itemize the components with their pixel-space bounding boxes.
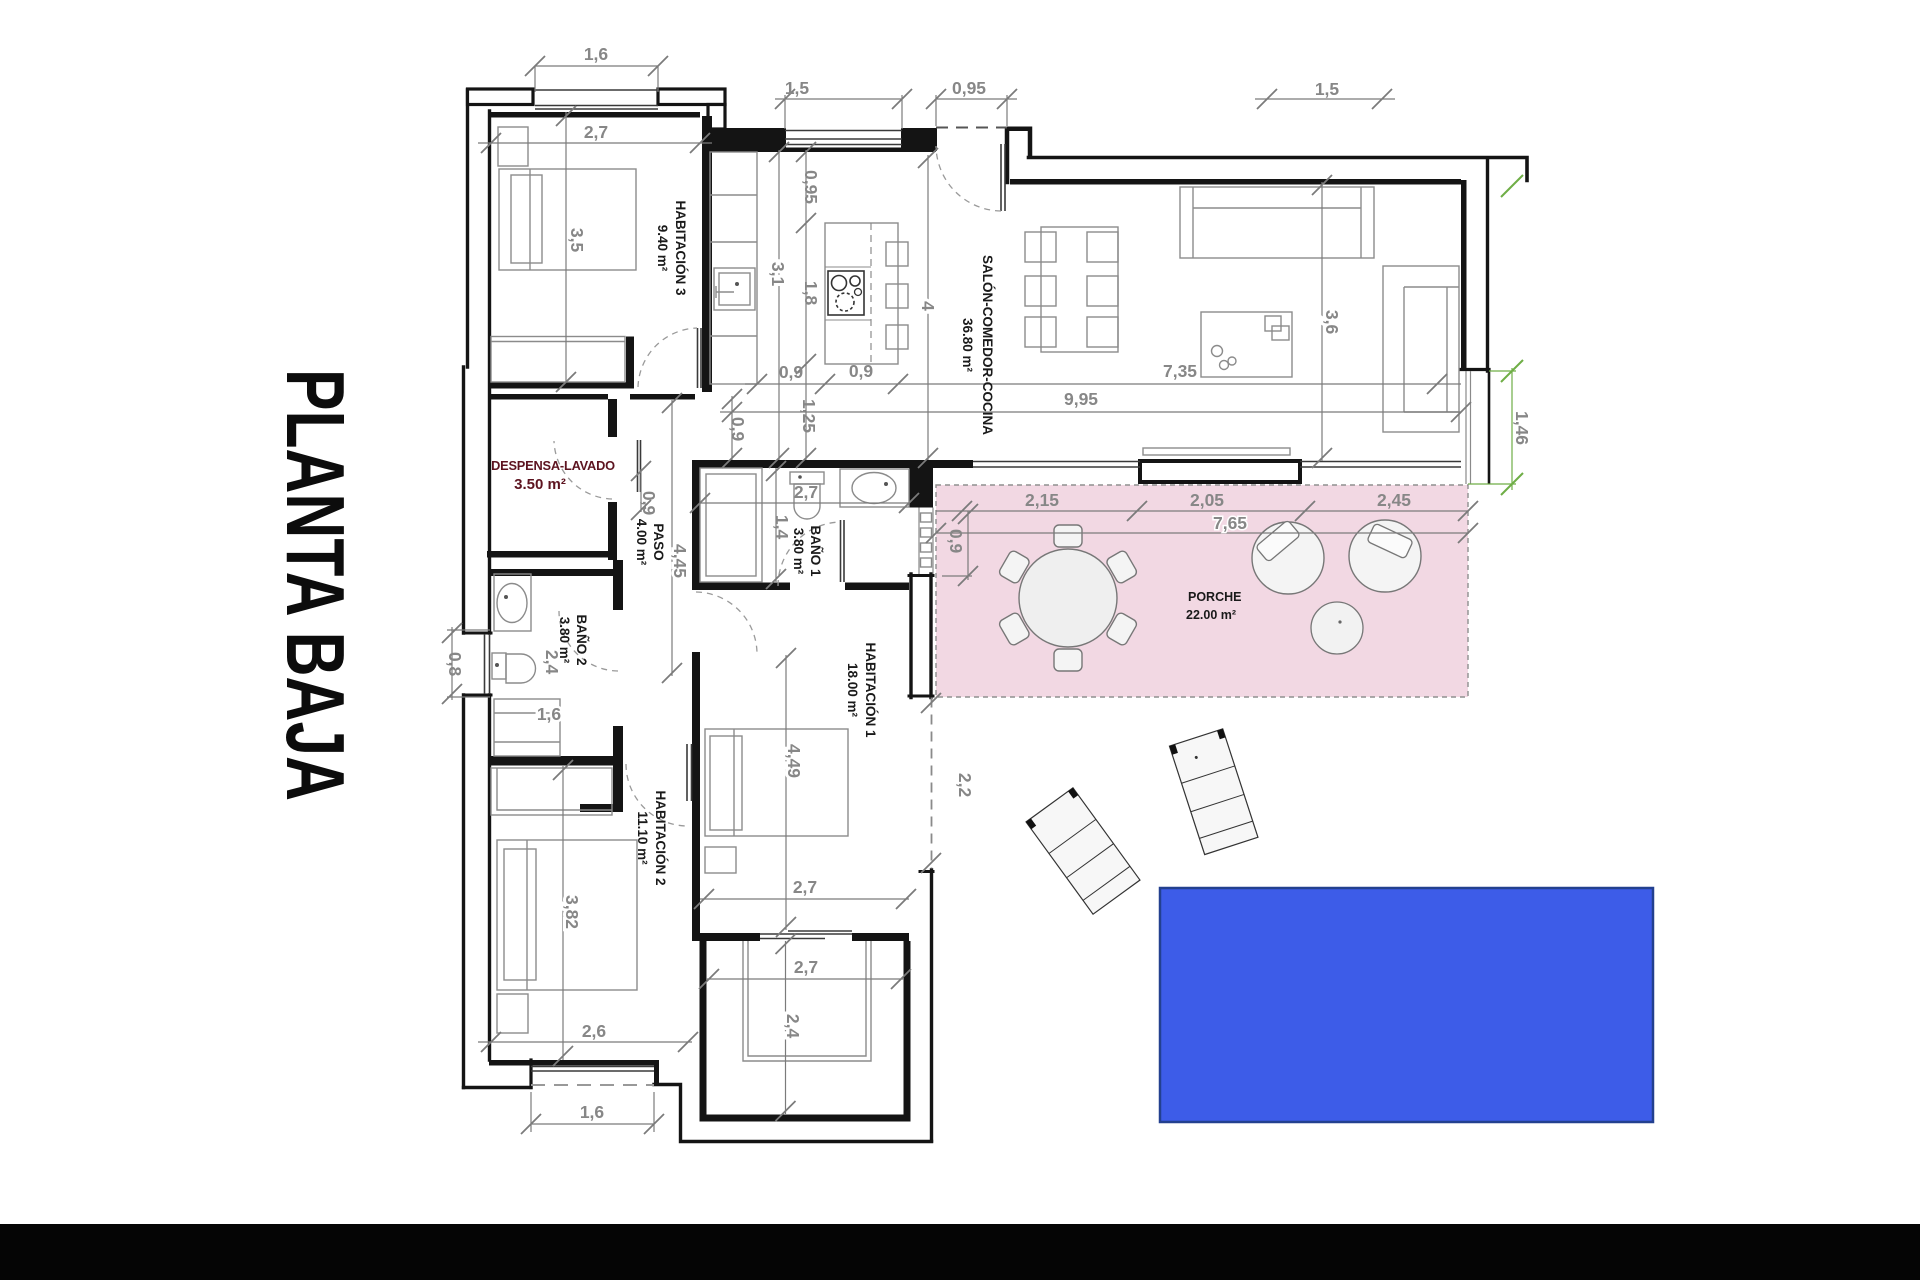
- svg-text:18.00 m²: 18.00 m²: [845, 663, 860, 718]
- svg-text:DESPENSA-LAVADO: DESPENSA-LAVADO: [491, 458, 615, 473]
- svg-text:3,6: 3,6: [1322, 310, 1342, 335]
- svg-text:4: 4: [918, 301, 938, 311]
- svg-text:0,9: 0,9: [728, 417, 748, 442]
- svg-text:3,82: 3,82: [562, 895, 582, 929]
- svg-text:2,15: 2,15: [1025, 490, 1059, 510]
- svg-text:4.00 m²: 4.00 m²: [634, 519, 649, 566]
- svg-text:1,46: 1,46: [1512, 411, 1532, 445]
- svg-text:2,05: 2,05: [1190, 490, 1224, 510]
- svg-text:4,49: 4,49: [784, 744, 804, 778]
- svg-text:HABITACIÓN 1: HABITACIÓN 1: [863, 642, 878, 737]
- svg-text:2,45: 2,45: [1377, 490, 1411, 510]
- svg-text:1,5: 1,5: [1315, 79, 1340, 99]
- svg-text:2,7: 2,7: [794, 957, 818, 977]
- svg-text:1,5: 1,5: [785, 78, 810, 98]
- svg-text:3.50 m²: 3.50 m²: [514, 476, 566, 493]
- svg-text:HABITACIÓN 2: HABITACIÓN 2: [653, 790, 668, 885]
- svg-text:1,25: 1,25: [799, 399, 819, 433]
- svg-text:PLANTA BAJA: PLANTA BAJA: [269, 369, 362, 801]
- svg-text:0,9: 0,9: [639, 491, 659, 516]
- svg-text:1,6: 1,6: [537, 704, 562, 724]
- svg-text:11.10 m²: 11.10 m²: [635, 811, 650, 865]
- svg-text:0,9: 0,9: [849, 361, 874, 381]
- svg-text:0,9: 0,9: [779, 362, 804, 382]
- svg-text:2,2: 2,2: [955, 773, 975, 798]
- svg-text:1,6: 1,6: [580, 1102, 605, 1122]
- svg-text:PORCHE: PORCHE: [1188, 590, 1241, 604]
- svg-text:2,4: 2,4: [542, 650, 562, 675]
- svg-text:9.40 m²: 9.40 m²: [655, 225, 670, 272]
- svg-text:22.00 m²: 22.00 m²: [1186, 608, 1236, 622]
- svg-text:0,9: 0,9: [946, 529, 966, 554]
- svg-text:7,65: 7,65: [1213, 513, 1247, 533]
- svg-text:PASO: PASO: [651, 523, 666, 560]
- svg-text:7,35: 7,35: [1163, 361, 1197, 381]
- svg-text:3.80 m²: 3.80 m²: [791, 528, 806, 575]
- svg-text:2,7: 2,7: [584, 122, 608, 142]
- svg-text:4,45: 4,45: [670, 544, 690, 578]
- svg-text:0,8: 0,8: [445, 652, 465, 677]
- svg-text:1,4: 1,4: [772, 515, 792, 540]
- svg-text:2,4: 2,4: [783, 1014, 803, 1039]
- svg-text:2,7: 2,7: [793, 877, 817, 897]
- svg-text:BAÑO 1: BAÑO 1: [808, 525, 823, 576]
- svg-text:9,95: 9,95: [1064, 389, 1098, 409]
- svg-text:3,1: 3,1: [768, 262, 788, 287]
- svg-text:0,95: 0,95: [801, 170, 821, 204]
- svg-text:HABITACIÓN 3: HABITACIÓN 3: [673, 200, 688, 295]
- svg-text:3,5: 3,5: [567, 228, 587, 253]
- svg-text:2,7: 2,7: [794, 482, 818, 502]
- svg-text:0,95: 0,95: [952, 78, 986, 98]
- svg-text:BAÑO 2: BAÑO 2: [574, 614, 589, 665]
- svg-text:2,6: 2,6: [582, 1021, 607, 1041]
- svg-text:1,8: 1,8: [801, 281, 821, 306]
- svg-text:36.80 m²: 36.80 m²: [960, 318, 975, 373]
- svg-text:SALÓN-COMEDOR-COCINA: SALÓN-COMEDOR-COCINA: [980, 255, 995, 435]
- svg-text:1,6: 1,6: [584, 44, 609, 64]
